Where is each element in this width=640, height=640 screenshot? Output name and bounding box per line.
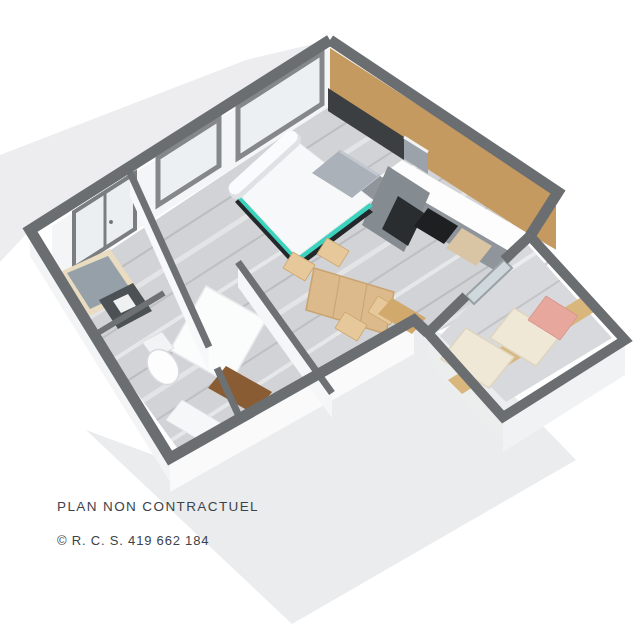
door-handle (109, 220, 113, 224)
registration-text: © R. C. S. 419 662 184 (57, 533, 209, 548)
floorplan-illustration: PLAN NON CONTRACTUEL © R. C. S. 419 662 … (0, 0, 640, 640)
floorplan-page: PLAN NON CONTRACTUEL © R. C. S. 419 662 … (0, 0, 640, 640)
disclaimer-text: PLAN NON CONTRACTUEL (57, 499, 259, 514)
